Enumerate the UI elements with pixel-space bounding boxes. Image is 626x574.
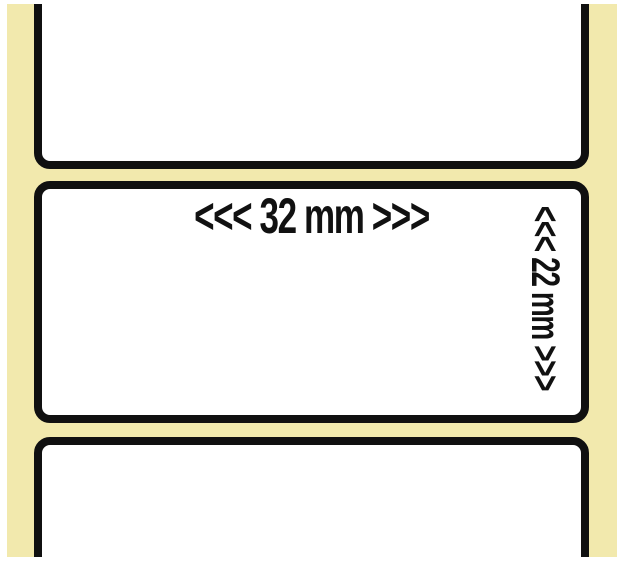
blank-label-top — [34, 4, 589, 169]
label-height-dimension-text: <<< 22 mm >>> — [525, 206, 565, 390]
label-liner-strip: <<< 32 mm >>> <<< 22 mm >>> — [7, 4, 617, 557]
label-width-dimension-text: <<< 32 mm >>> — [123, 191, 500, 241]
blank-label-bottom — [34, 437, 589, 557]
dimension-label: <<< 32 mm >>> <<< 22 mm >>> — [34, 181, 589, 423]
